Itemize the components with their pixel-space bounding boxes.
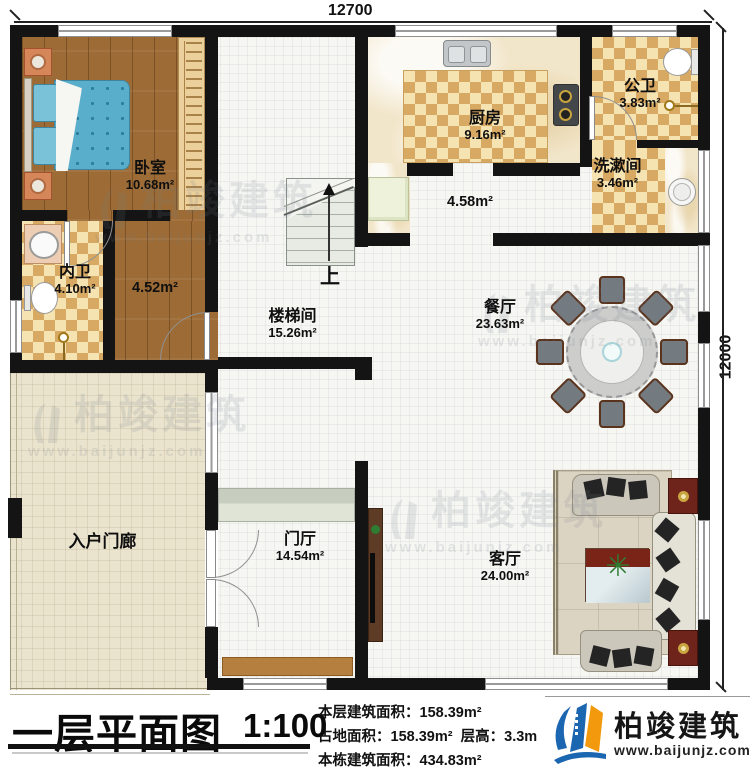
sofa	[652, 512, 696, 640]
burner-icon	[559, 90, 572, 103]
entry-mat	[222, 657, 353, 676]
stats-line-2: 占地面积：158.39m² 层高：3.3m	[318, 725, 537, 749]
sofa-pillow	[583, 478, 604, 499]
hall-cabinet	[368, 177, 409, 221]
wall-segment	[355, 233, 410, 246]
stats-line-1: 本层建筑面积：158.39m²	[318, 701, 537, 725]
dining-table	[566, 306, 658, 398]
bed-headboard	[24, 78, 32, 172]
bed-pillow	[33, 84, 58, 122]
burner-icon	[559, 108, 572, 121]
washroom-sink	[668, 178, 696, 206]
wall-segment	[355, 461, 368, 678]
brand-divider	[545, 696, 750, 697]
drawing-title: 一层平面图	[12, 700, 222, 760]
dimension-top-label: 12700	[328, 2, 373, 20]
window	[58, 25, 172, 37]
room-label-suite-hall: 4.52m²	[110, 280, 200, 296]
wall-segment	[637, 140, 700, 148]
nightstand	[24, 48, 52, 76]
lamp-icon	[30, 178, 46, 194]
tv-cabinet	[368, 508, 383, 642]
wall-segment	[493, 233, 710, 246]
nightstand	[24, 172, 52, 200]
sofa-pillow	[654, 517, 679, 542]
room-label-service-hall: 4.58m²	[420, 194, 520, 210]
stair-direction-label: 上	[316, 266, 344, 288]
coffee-table: ✳	[585, 548, 649, 602]
chair	[660, 339, 688, 365]
porch-step-line	[10, 688, 207, 689]
sofa-pillow	[589, 645, 611, 667]
plant-icon: ✳	[602, 551, 634, 583]
dimension-right-line	[722, 28, 724, 690]
lamp-icon	[30, 54, 46, 70]
sofa-pillow	[612, 648, 632, 668]
room-label-foyer: 门厅14.54m²	[250, 531, 350, 563]
sofa-pillow	[606, 477, 626, 497]
sofa	[580, 630, 662, 672]
door-leaf	[64, 221, 70, 267]
room-label-washroom: 洗漱间3.46m²	[565, 158, 670, 190]
side-table	[668, 630, 698, 666]
floor-plan-page: 12700 12000	[0, 0, 750, 778]
wall-segment	[355, 357, 372, 380]
brand-url: www.baijunjz.com	[614, 742, 750, 758]
toilet-bowl	[663, 48, 692, 76]
window	[395, 25, 557, 37]
floor-patch	[170, 210, 205, 221]
bathroom-sink	[24, 224, 62, 264]
dining-table-center	[602, 342, 622, 362]
wall-segment	[218, 357, 372, 369]
toilet	[663, 48, 699, 76]
room-label-bedroom: 卧室10.68m²	[100, 160, 200, 192]
room-label-living: 客厅24.00m²	[455, 551, 555, 583]
kitchen-sink	[443, 40, 491, 67]
window	[612, 25, 677, 37]
foyer-mat	[218, 488, 355, 522]
window	[698, 150, 710, 233]
floor-patch	[592, 140, 637, 148]
sofa-pillow	[655, 578, 680, 603]
wall-segment	[407, 163, 453, 176]
sofa	[572, 474, 660, 516]
dimension-tick	[715, 681, 726, 692]
window	[698, 520, 710, 620]
title-underline	[12, 752, 308, 754]
sofa-pillow	[634, 646, 655, 667]
room-label-kitchen: 厨房9.16m²	[430, 110, 540, 142]
shower-arm	[63, 343, 65, 360]
window	[243, 678, 327, 690]
side-table	[668, 478, 698, 514]
bed-pillow	[33, 127, 58, 165]
drawing-scale: 1:100	[243, 707, 327, 745]
wall-segment	[22, 210, 67, 221]
bed	[24, 78, 130, 172]
flower-icon	[678, 643, 689, 654]
stair-arrow	[328, 193, 330, 261]
stair-arrow-head	[323, 183, 335, 195]
window	[698, 245, 710, 312]
brand-name: 柏竣建筑	[614, 703, 742, 745]
title-underline	[8, 744, 310, 749]
sofa-pillow	[628, 480, 648, 500]
window	[698, 343, 710, 408]
wall-segment	[113, 210, 170, 221]
window	[485, 678, 668, 690]
stats-line-3: 本栋建筑面积：434.83m²	[318, 749, 537, 773]
window	[10, 300, 22, 353]
dimension-top-line	[14, 21, 712, 23]
plant-icon	[371, 525, 380, 534]
dimension-right-label: 12000	[717, 335, 735, 380]
door-leaf	[206, 530, 216, 578]
chair	[599, 400, 625, 428]
sink-basin	[470, 46, 487, 63]
room-label-stairwell: 楼梯间15.26m²	[240, 308, 345, 340]
sofa-pillow	[655, 547, 680, 572]
sink-basin	[29, 231, 59, 259]
building-stats: 本层建筑面积：158.39m² 占地面积：158.39m² 层高：3.3m 本栋…	[318, 701, 537, 773]
wall-segment	[10, 360, 218, 373]
wall-segment	[205, 37, 218, 312]
sofa-pillow	[655, 607, 680, 632]
room-label-public-bath: 公卫3.83m²	[590, 78, 690, 110]
flower-icon	[678, 491, 689, 502]
chair	[536, 339, 564, 365]
porch-step-line	[10, 694, 210, 695]
wall-segment	[355, 37, 368, 247]
stove	[553, 84, 579, 126]
window	[205, 392, 218, 473]
room-label-master-bath: 内卫4.10m²	[30, 264, 120, 296]
floor-patch	[67, 210, 113, 221]
door-leaf	[204, 312, 210, 360]
tv	[370, 553, 375, 623]
room-label-porch: 入户门廊	[35, 532, 170, 551]
shower-head-icon	[58, 332, 69, 343]
dimension-tick	[703, 9, 714, 20]
dimension-tick	[715, 21, 726, 32]
chair	[599, 276, 625, 304]
porch-pier	[8, 498, 22, 538]
sink-basin	[448, 46, 465, 63]
room-label-dining: 餐厅23.63m²	[445, 299, 555, 331]
brand-logo-icon	[548, 700, 612, 770]
sink-basin	[673, 183, 691, 201]
dimension-tick	[9, 9, 20, 20]
door-leaf	[206, 579, 216, 627]
